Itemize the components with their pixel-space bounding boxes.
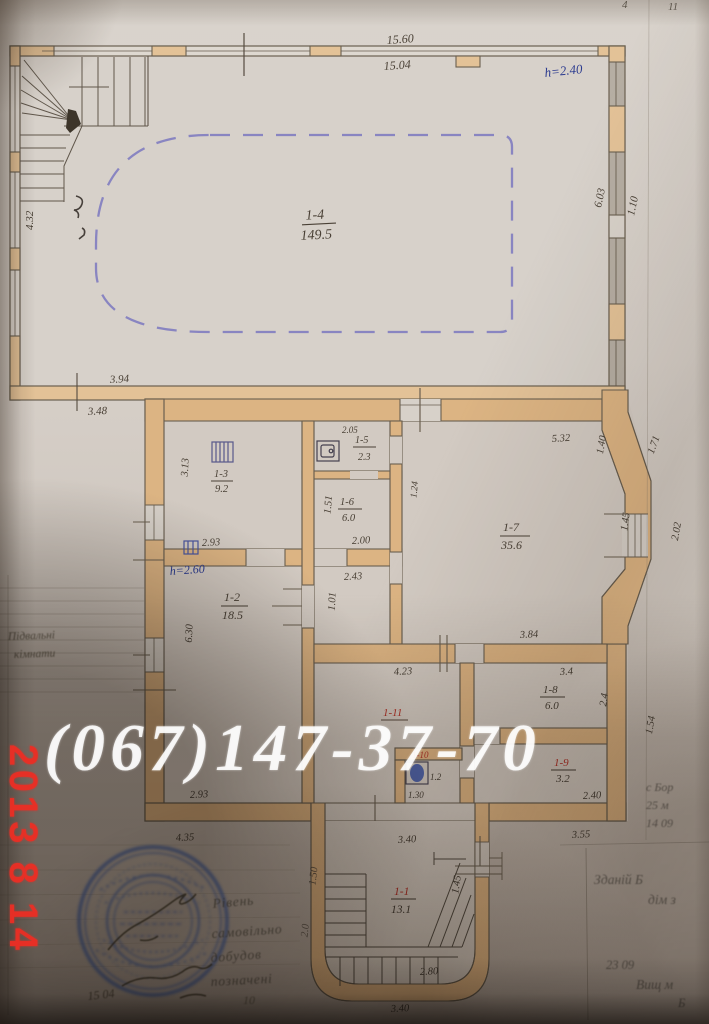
svg-text:1-2: 1-2 xyxy=(224,590,240,604)
svg-text:4.32: 4.32 xyxy=(24,210,36,230)
svg-text:3.13: 3.13 xyxy=(180,458,192,478)
svg-text:11: 11 xyxy=(668,1,678,13)
svg-text:3.4: 3.4 xyxy=(559,666,574,678)
svg-text:15 04: 15 04 xyxy=(87,986,115,1003)
svg-text:2.40: 2.40 xyxy=(583,790,603,802)
svg-text:Зданій Б: Зданій Б xyxy=(594,872,643,887)
svg-text:1-6: 1-6 xyxy=(340,497,355,508)
svg-text:1-3: 1-3 xyxy=(214,469,228,480)
svg-text:кімнати: кімнати xyxy=(14,648,56,661)
svg-text:1-5: 1-5 xyxy=(355,435,368,446)
svg-text:1.30: 1.30 xyxy=(408,790,424,800)
svg-text:1.01: 1.01 xyxy=(327,592,339,611)
svg-text:позначені: позначені xyxy=(210,971,273,989)
svg-text:1.24: 1.24 xyxy=(410,481,421,499)
svg-text:2.05: 2.05 xyxy=(342,425,358,435)
svg-text:самовільно: самовільно xyxy=(211,921,283,941)
svg-text:2.0: 2.0 xyxy=(300,923,312,938)
svg-text:14 09: 14 09 xyxy=(646,816,673,830)
svg-text:3.40: 3.40 xyxy=(397,834,418,846)
svg-text:1-4: 1-4 xyxy=(305,208,324,224)
svg-text:Рівень: Рівень xyxy=(211,892,255,911)
svg-text:3.55: 3.55 xyxy=(571,829,591,841)
svg-text:1.71: 1.71 xyxy=(646,434,663,455)
svg-text:1-1: 1-1 xyxy=(394,886,409,898)
svg-text:18.5: 18.5 xyxy=(222,608,243,622)
svg-text:10: 10 xyxy=(243,993,255,1007)
svg-text:9.2: 9.2 xyxy=(215,484,229,495)
svg-text:2.43: 2.43 xyxy=(344,571,363,583)
svg-text:6.30: 6.30 xyxy=(184,623,196,643)
svg-text:с Бор: с Бор xyxy=(646,780,673,794)
svg-text:1.50: 1.50 xyxy=(308,866,321,886)
svg-text:2.00: 2.00 xyxy=(352,535,372,547)
svg-text:3.40: 3.40 xyxy=(390,1003,411,1015)
svg-text:1-8: 1-8 xyxy=(543,684,558,696)
svg-text:3.48: 3.48 xyxy=(87,405,108,418)
svg-text:1-7: 1-7 xyxy=(503,520,520,534)
svg-text:3.84: 3.84 xyxy=(519,629,540,641)
svg-text:2.02: 2.02 xyxy=(670,521,684,542)
svg-text:4: 4 xyxy=(622,0,628,11)
svg-text:h=2.60: h=2.60 xyxy=(169,562,205,578)
svg-text:3.94: 3.94 xyxy=(109,373,130,386)
svg-text:2.93: 2.93 xyxy=(190,789,209,801)
svg-text:25 м: 25 м xyxy=(646,798,669,812)
svg-text:23 09: 23 09 xyxy=(606,958,635,972)
svg-text:добудов: добудов xyxy=(210,946,262,965)
svg-text:4.35: 4.35 xyxy=(176,832,195,844)
svg-text:149.5: 149.5 xyxy=(300,227,332,244)
svg-text:3.2: 3.2 xyxy=(555,773,570,785)
svg-text:2.3: 2.3 xyxy=(358,452,371,463)
svg-text:15.60: 15.60 xyxy=(386,31,414,47)
svg-text:2.93: 2.93 xyxy=(202,537,221,549)
svg-text:1.10: 1.10 xyxy=(625,195,641,217)
svg-text:6.0: 6.0 xyxy=(545,700,559,712)
svg-text:13.1: 13.1 xyxy=(391,904,411,916)
svg-text:1.51: 1.51 xyxy=(323,495,336,514)
svg-text:1-9: 1-9 xyxy=(554,757,569,769)
svg-text:4.23: 4.23 xyxy=(394,666,413,678)
svg-text:Б: Б xyxy=(677,996,686,1010)
svg-text:5.32: 5.32 xyxy=(551,433,571,445)
svg-text:15.04: 15.04 xyxy=(383,57,411,73)
svg-text:35.6: 35.6 xyxy=(500,538,522,552)
svg-text:2.4: 2.4 xyxy=(598,692,611,707)
svg-text:дім з: дім з xyxy=(648,892,676,907)
svg-text:2.80: 2.80 xyxy=(420,966,440,978)
svg-text:Підвальні: Підвальні xyxy=(7,629,56,643)
svg-text:Вищ м: Вищ м xyxy=(636,977,674,992)
svg-text:6.0: 6.0 xyxy=(342,513,356,524)
